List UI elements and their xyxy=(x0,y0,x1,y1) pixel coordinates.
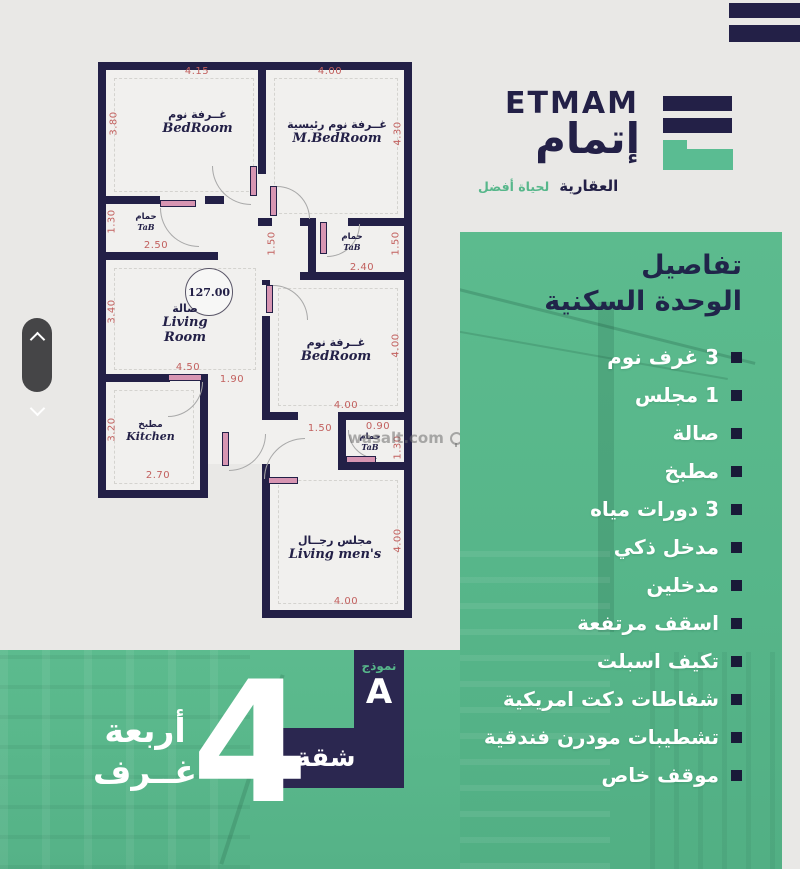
door-leaf xyxy=(346,456,376,463)
list-item: تشطيبات مودرن فندقية xyxy=(484,726,742,748)
chevron-up-icon xyxy=(30,332,46,348)
list-item: مطبخ xyxy=(484,460,742,482)
watermark: wasalt.com xyxy=(348,429,463,447)
logo-division: العقارية xyxy=(559,177,618,195)
logo-mark-bar xyxy=(663,118,732,133)
rooms-count-text: أربعة غــرف xyxy=(75,710,215,792)
list-item: 3 دورات مياه xyxy=(484,498,742,520)
wall xyxy=(262,610,412,618)
dimension-label: 4.00 xyxy=(326,400,366,411)
bullet-icon xyxy=(731,580,742,591)
room-label-bedroom-2: غــرفة نوم BedRoom xyxy=(276,336,396,364)
wall xyxy=(404,62,412,420)
model-box: نموذج A xyxy=(354,650,404,728)
dimension-label: 2.50 xyxy=(138,240,174,251)
dimension-label: 1.50 xyxy=(391,224,402,264)
wall xyxy=(300,272,412,280)
bullet-icon xyxy=(731,352,742,363)
list-item: اسقف مرتفعة xyxy=(484,612,742,634)
dimension-label: 2.70 xyxy=(138,470,178,481)
logo-subline: العقارية لحياة أفضل xyxy=(478,177,640,195)
model-value: A xyxy=(354,675,404,709)
dimension-label: 2.40 xyxy=(342,262,382,273)
door-leaf xyxy=(268,477,298,484)
list-item: 1 مجلس xyxy=(484,384,742,406)
logo-mark-green xyxy=(663,140,687,170)
room-label-bath-2: حمام TaB xyxy=(332,232,372,252)
list-item: شفاطات دكت امريكية xyxy=(484,688,742,710)
door-leaf xyxy=(222,432,229,466)
room-label-living-room: صالة Living Room xyxy=(145,302,225,345)
real-estate-poster: ETMAM إتمام العقارية لحياة أفضل xyxy=(0,0,800,869)
logo-mark-green xyxy=(687,149,733,170)
wall xyxy=(98,62,412,70)
door-leaf xyxy=(168,374,202,381)
door-leaf xyxy=(160,200,196,207)
room-label-living-mens: مجلس رجــال Living men's xyxy=(270,534,400,562)
scroll-pill xyxy=(22,318,52,392)
chevron-down-icon xyxy=(30,401,46,417)
list-item: صالة xyxy=(484,422,742,444)
wall xyxy=(262,412,298,420)
list-item: تكيف اسبلت xyxy=(484,650,742,672)
door-leaf xyxy=(270,186,277,216)
details-panel: تفاصيل الوحدة السكنية 3 غرف نوم 1 مجلس ص… xyxy=(460,232,782,869)
door-leaf xyxy=(320,222,327,254)
logo-mark-bar xyxy=(663,96,732,111)
dimension-label: 4.00 xyxy=(305,66,355,77)
room-label-bedroom-1: غــرفة نوم BedRoom xyxy=(140,108,255,136)
bullet-icon xyxy=(731,770,742,781)
watermark-text: wasalt.com xyxy=(348,429,444,447)
model-label: نموذج xyxy=(354,659,404,673)
corner-bar xyxy=(729,25,800,42)
dimension-label: 4.15 xyxy=(172,66,222,77)
feature-list: 3 غرف نوم 1 مجلس صالة مطبخ 3 دورات مياه … xyxy=(484,346,742,786)
wall xyxy=(98,252,218,260)
bullet-icon xyxy=(731,694,742,705)
dimension-label: 1.90 xyxy=(212,374,252,385)
wall xyxy=(338,412,412,420)
wall xyxy=(308,218,316,272)
wall xyxy=(262,316,270,412)
dimension-label: 4.00 xyxy=(326,596,366,607)
logo-brand-ar: إتمام xyxy=(478,116,640,162)
dimension-label: 3.40 xyxy=(107,292,118,332)
list-item: موقف خاص xyxy=(484,764,742,786)
area-value: 127.00 xyxy=(188,286,230,299)
room-label-kitchen: مطبخ Kitchen xyxy=(118,420,183,443)
bullet-icon xyxy=(731,428,742,439)
dimension-label: 1.50 xyxy=(267,224,278,264)
wall xyxy=(338,412,346,462)
bullet-icon xyxy=(731,618,742,629)
wall xyxy=(98,490,208,498)
wall xyxy=(258,62,266,174)
bullet-icon xyxy=(731,732,742,743)
door-arc xyxy=(229,434,266,471)
bullet-icon xyxy=(731,542,742,553)
wall xyxy=(404,420,412,618)
wall xyxy=(205,196,224,204)
logo-tagline: لحياة أفضل xyxy=(478,179,549,194)
dimension-label: 3.20 xyxy=(107,410,118,450)
bullet-icon xyxy=(731,504,742,515)
room-label-bath-1: حمام TaB xyxy=(126,212,166,232)
wall xyxy=(262,464,270,610)
dimension-label: 4.50 xyxy=(168,362,208,373)
corner-bar xyxy=(729,3,800,18)
panel-title: تفاصيل الوحدة السكنية xyxy=(544,248,742,321)
scroll-up-button[interactable] xyxy=(22,318,52,355)
list-item: مدخلين xyxy=(484,574,742,596)
bullet-icon xyxy=(731,466,742,477)
list-item: 3 غرف نوم xyxy=(484,346,742,368)
scroll-down-button[interactable] xyxy=(22,355,52,392)
bullet-icon xyxy=(731,390,742,401)
bullet-icon xyxy=(731,656,742,667)
door-leaf xyxy=(250,166,257,196)
wall xyxy=(98,62,106,498)
wall xyxy=(98,374,170,382)
dimension-label: 3.80 xyxy=(109,104,120,144)
list-item: مدخل ذكي xyxy=(484,536,742,558)
dimension-label: 1.50 xyxy=(302,423,338,434)
room-label-master-bedroom: غــرفة نوم رئيسية M.BedRoom xyxy=(272,118,402,146)
door-leaf xyxy=(266,285,273,313)
dimension-label: 1.30 xyxy=(107,202,118,242)
